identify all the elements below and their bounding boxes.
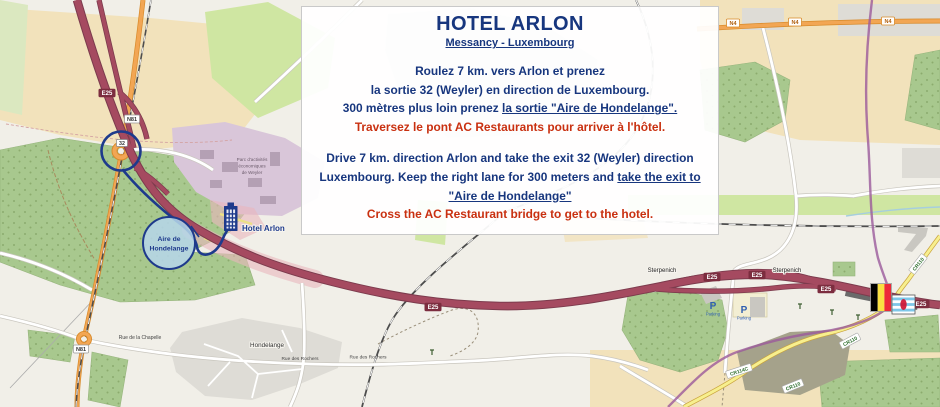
fr-line-3-emphasis: la sortie "Aire de Hondelange". (502, 101, 677, 115)
business-park-label: Parc d'activités (237, 157, 268, 162)
en-line-2-emphasis: take the exit to (617, 170, 700, 184)
e25-badge: E25 (102, 91, 113, 97)
sterpenich-label: Sterpenich (648, 268, 677, 274)
n4-badge: N4 (729, 21, 737, 27)
hondelange-label: Hondelange (250, 342, 284, 349)
e25-badge: E25 (752, 273, 763, 279)
fr-line-2: la sortie 32 (Weyler) en direction de Lu… (307, 81, 713, 100)
rue-des-rochers-label: Rue des Rochers (349, 355, 387, 361)
e25-badge: E25 (428, 305, 439, 311)
n4-badge: N4 (884, 19, 892, 25)
belgium-flag-icon (871, 284, 892, 312)
en-line-3: "Aire de Hondelange" (307, 187, 713, 206)
hotel-location-subtitle: Messancy - Luxembourg (307, 37, 713, 49)
business-park-label: de Weyler (242, 170, 263, 175)
fr-line-4: Traversez le pont AC Restaurants pour ar… (307, 118, 713, 137)
business-park-label: économiques (238, 164, 266, 169)
e25-badge: E25 (707, 275, 718, 281)
directions-english: Drive 7 km. direction Arlon and take the… (307, 149, 713, 223)
n4-badge: N4 (791, 20, 799, 26)
hotel-name-title: HOTEL ARLON (307, 13, 713, 36)
sterpenich-label: Sterpenich (773, 268, 802, 274)
parking-label: Parking (737, 316, 752, 321)
en-line-1: Drive 7 km. direction Arlon and take the… (307, 149, 713, 168)
parking-p-icon: P (741, 305, 748, 316)
building (750, 297, 765, 317)
hotel-marker-label: Hotel Arlon (242, 224, 285, 233)
en-line-2: Luxembourg. Keep the right lane for 300 … (307, 168, 713, 187)
rue-des-rochers-label: Rue des Rochers (281, 356, 319, 362)
fr-line-3-text: 300 mètres plus loin prenez (343, 101, 502, 115)
hotel-directions-map-image: E25 E25 E25 E25 E25 E25 N4 N4 N4 N81 N81… (0, 0, 940, 407)
directions-panel: HOTEL ARLON Messancy - Luxembourg Roulez… (301, 6, 719, 235)
en-line-4: Cross the AC Restaurant bridge to get to… (307, 205, 713, 224)
aire-bubble-label: Hondelange (150, 246, 189, 253)
parking-label: Parking (706, 312, 721, 317)
exit-number-badge: 32 (119, 141, 125, 147)
aire-de-hondelange-bubble (143, 217, 195, 269)
directions-french: Roulez 7 km. vers Arlon et prenez la sor… (307, 62, 713, 136)
fr-line-1: Roulez 7 km. vers Arlon et prenez (307, 62, 713, 81)
n81-badge: N81 (127, 117, 137, 123)
parking-p-icon: P (710, 301, 717, 312)
e25-badge: E25 (821, 287, 832, 293)
en-line-2-text: Luxembourg. Keep the right lane for 300 … (319, 170, 617, 184)
luxembourg-arms-icon (892, 295, 915, 314)
rue-de-la-chapelle-label: Rue de la Chapelle (119, 335, 162, 341)
aire-bubble-label: Aire de (157, 236, 180, 243)
hotel-marker-icon (224, 203, 238, 232)
fr-line-3: 300 mètres plus loin prenez la sortie "A… (307, 99, 713, 118)
e25-badge: E25 (916, 302, 927, 308)
n81-badge: N81 (76, 347, 86, 353)
